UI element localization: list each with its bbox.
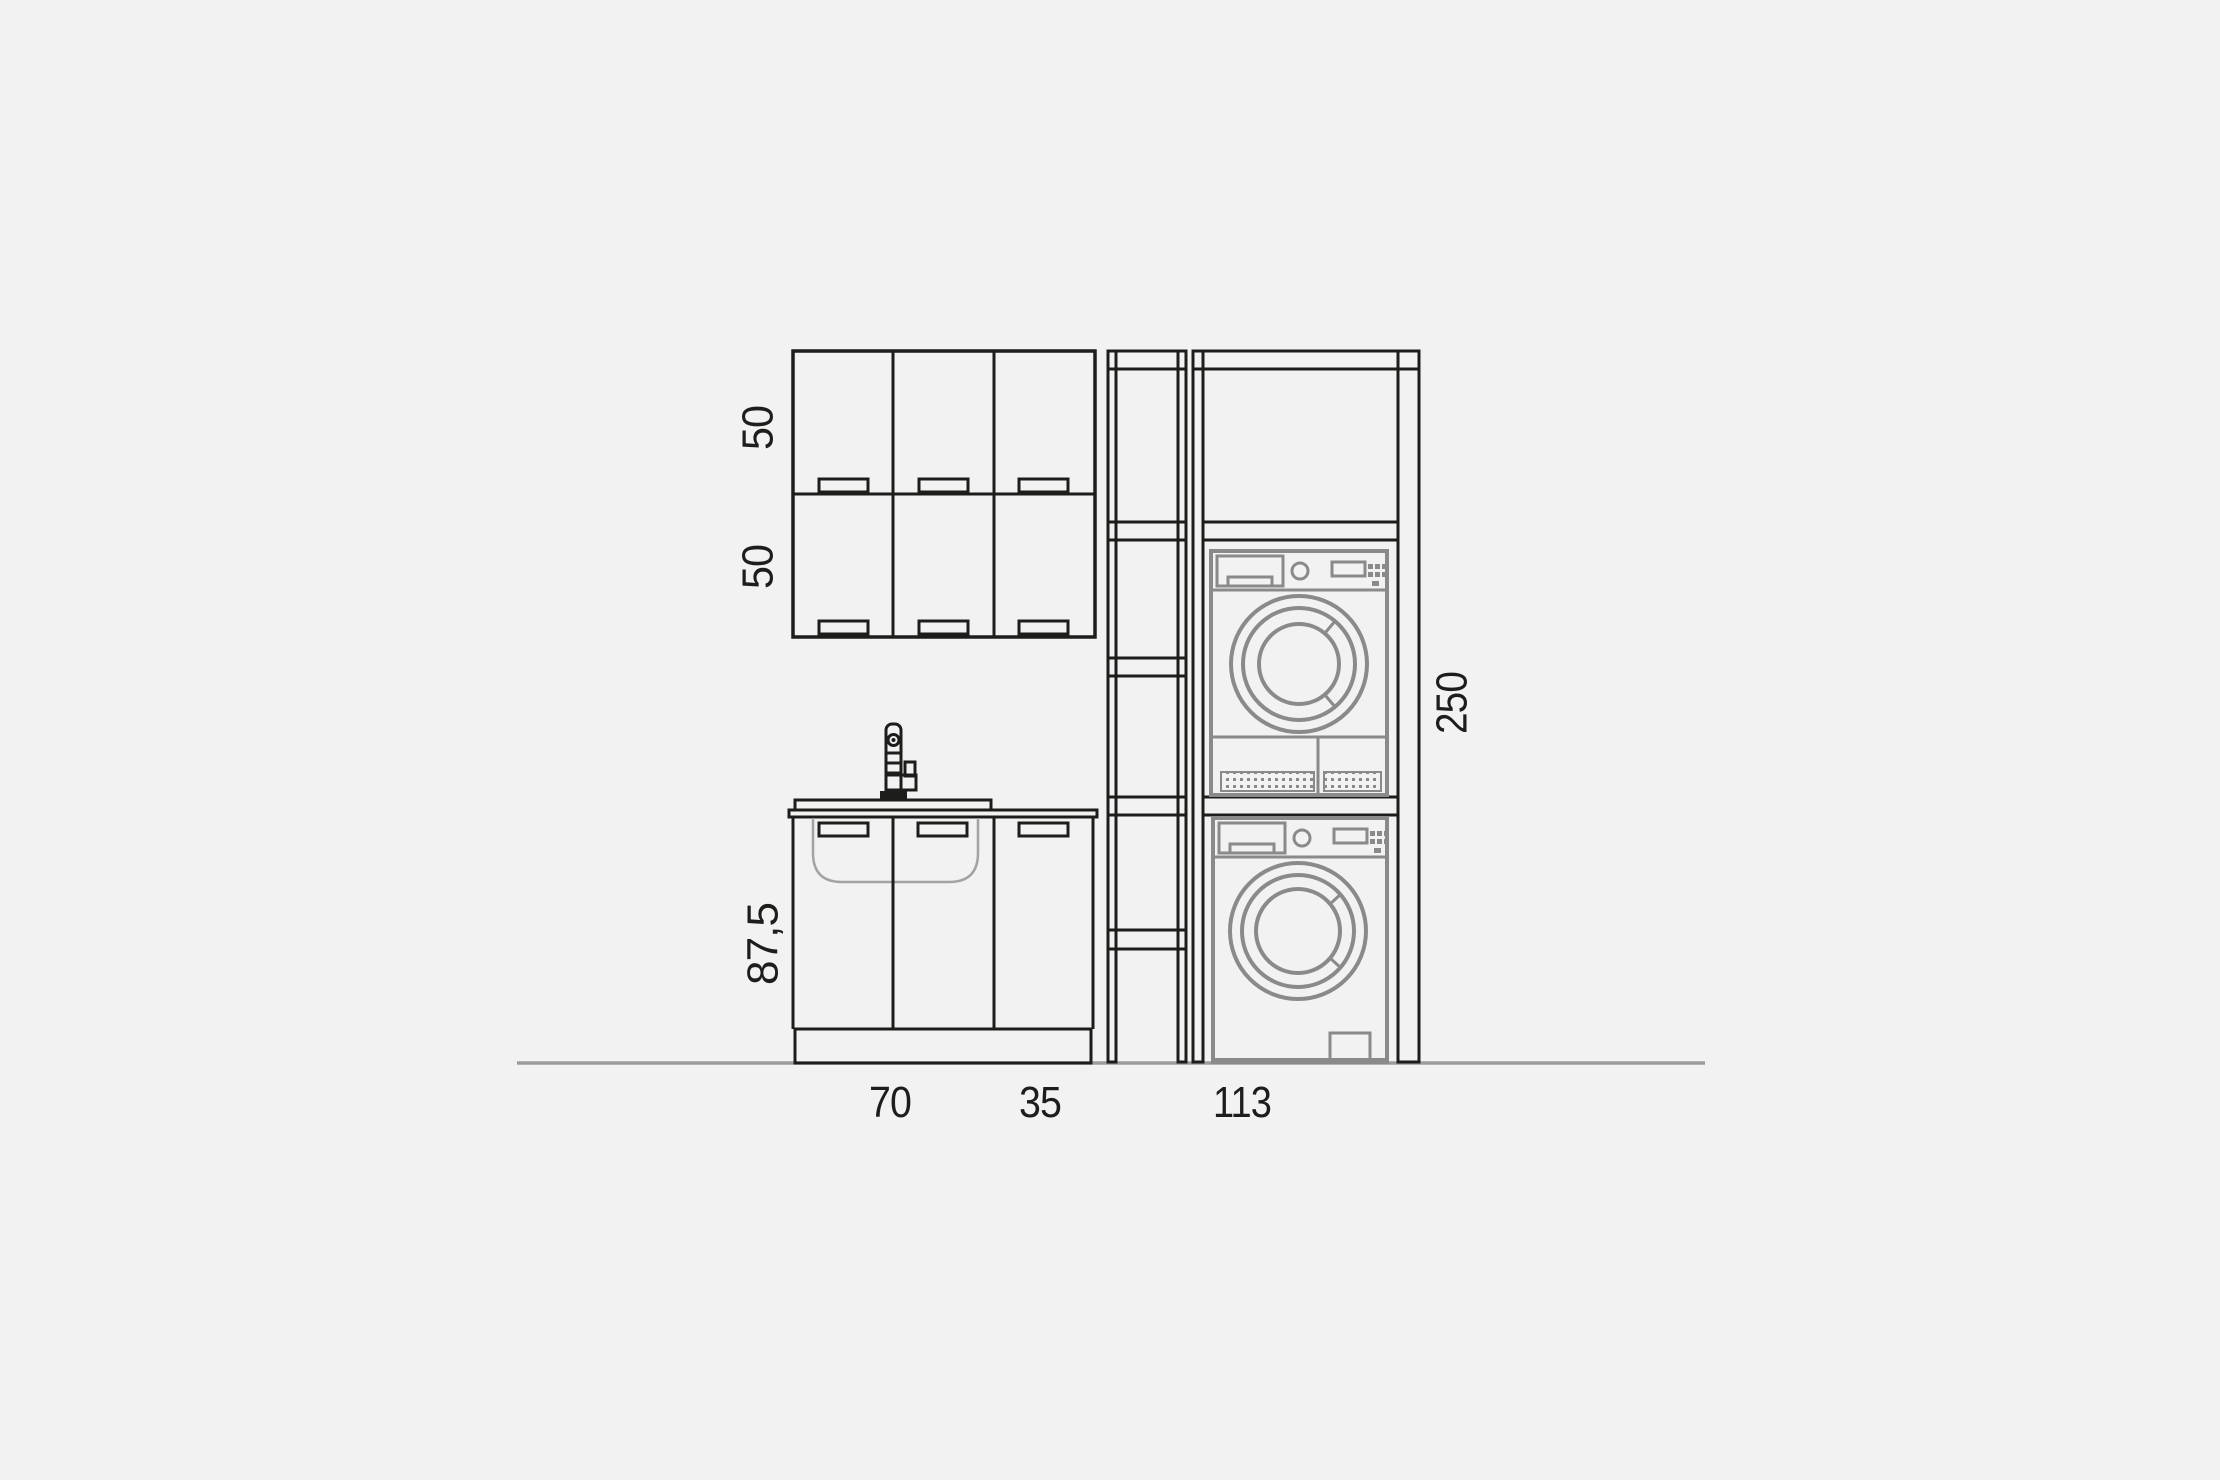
open-shelf-unit xyxy=(1108,351,1186,1062)
drawer-grip xyxy=(1230,844,1274,853)
shelf xyxy=(1108,522,1186,540)
program-knob xyxy=(1292,563,1308,579)
vent-grille xyxy=(1324,772,1381,791)
shelf-post-left xyxy=(1108,351,1116,1062)
door-handle-notch xyxy=(1325,695,1336,708)
dimension-column-height: 250 xyxy=(1428,672,1477,734)
dimension-appliance-column-width: 113 xyxy=(1213,1078,1271,1127)
shelf xyxy=(1108,658,1186,676)
washing-machine xyxy=(1213,818,1389,1062)
faucet xyxy=(880,724,916,800)
elevation-drawing: 50 50 87,5 250 70 35 113 xyxy=(0,0,2220,1480)
tower-post-left xyxy=(1193,351,1203,1062)
door-handle xyxy=(1019,621,1068,634)
shelf-post-right xyxy=(1178,351,1186,1062)
door-handle xyxy=(918,823,967,836)
dryer-body xyxy=(1211,551,1387,795)
dimension-wall-row2-height: 50 xyxy=(734,545,783,589)
door-handle xyxy=(1019,823,1068,836)
washer-door-glass xyxy=(1256,889,1340,973)
tumble-dryer xyxy=(1211,551,1387,795)
tower-shelf xyxy=(1203,522,1398,540)
countertop xyxy=(789,810,1097,817)
door-handle xyxy=(819,621,868,634)
dimension-labels: 50 50 87,5 250 70 35 113 xyxy=(734,406,1477,1127)
door-handle-notch xyxy=(1325,620,1336,633)
dimension-base-height: 87,5 xyxy=(739,903,788,985)
display-panel xyxy=(1332,562,1365,576)
washer-door-outer xyxy=(1230,863,1366,999)
door-handle xyxy=(919,479,968,492)
door-handle xyxy=(819,823,868,836)
wall-cabinets xyxy=(793,351,1095,637)
vent-grille xyxy=(1221,772,1314,791)
sink-base-cabinet xyxy=(789,800,1097,1063)
tower-top-panel xyxy=(1193,351,1419,369)
washer-door-ring xyxy=(1242,875,1354,987)
dimension-wall-row1-height: 50 xyxy=(734,406,783,450)
washer-body xyxy=(1213,818,1387,1062)
door-handle-notch xyxy=(1330,958,1341,968)
shelf xyxy=(1108,930,1186,949)
door-handle xyxy=(919,621,968,634)
tower-post-right xyxy=(1398,351,1419,1062)
plinth xyxy=(795,1029,1091,1063)
service-hatch xyxy=(1330,1033,1370,1060)
dryer-door-outer xyxy=(1231,596,1367,732)
shelf xyxy=(1108,797,1186,815)
tower-shelf xyxy=(1203,797,1398,815)
display-panel xyxy=(1334,829,1367,843)
faucet-detail-dot xyxy=(892,738,896,742)
door-handle-notch xyxy=(1330,894,1341,904)
program-knob xyxy=(1294,830,1310,846)
drawing-canvas: 50 50 87,5 250 70 35 113 xyxy=(0,0,2220,1480)
door-handle xyxy=(819,479,868,492)
dimension-sink-unit-width: 70 xyxy=(869,1078,911,1127)
dimension-base-unit-width: 35 xyxy=(1019,1078,1061,1127)
button-grid xyxy=(1368,564,1387,586)
sink-basin-outline xyxy=(813,818,978,882)
dryer-door-glass xyxy=(1259,624,1339,704)
shelf xyxy=(1108,351,1186,369)
door-handle xyxy=(1019,479,1068,492)
drawer-grip xyxy=(1228,577,1272,586)
